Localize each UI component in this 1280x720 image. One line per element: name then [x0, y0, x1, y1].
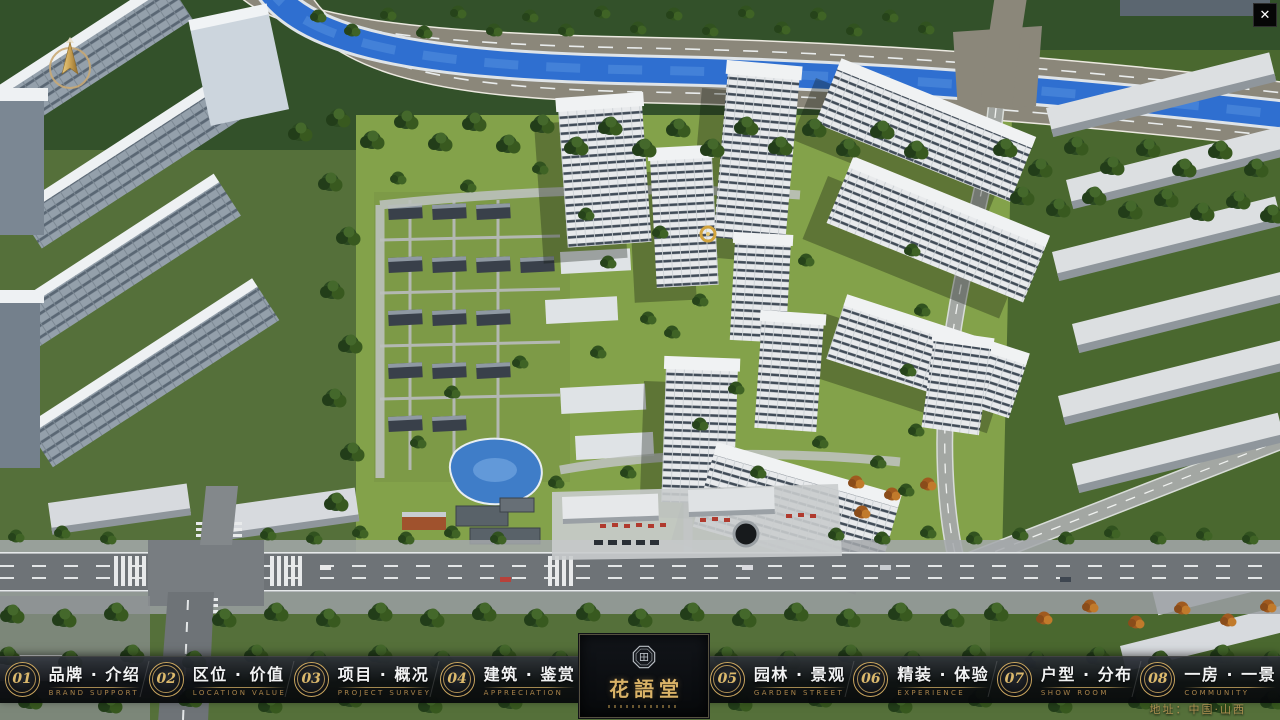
pond — [450, 439, 542, 505]
nav-label-zh: 建筑 · 鉴赏 — [484, 661, 576, 685]
nav-item-location-value[interactable]: 02 区位 · 价值 LOCATION VALUE — [145, 656, 290, 702]
nav-item-brand-intro[interactable]: 01 品牌 · 介绍 BRAND SUPPORT — [0, 656, 145, 702]
nav-item-project-overview[interactable]: 03 项目 · 概况 PROJECT SURVEY — [290, 656, 435, 702]
nav-divider-line — [193, 687, 286, 688]
nav-label-en: EXPERIENCE — [897, 689, 965, 697]
nav-number-badge: 02 — [149, 662, 184, 697]
nav-number-badge: 05 — [710, 662, 745, 697]
seal-emblem-icon — [631, 644, 657, 670]
nav-label-zh: 品牌 · 介绍 — [49, 661, 141, 685]
app-window: ✕ 01 品牌 · 介绍 BRAND SUPPORT 02 区位 · 价值 LO… — [0, 0, 1280, 720]
nav-number-badge: 01 — [5, 662, 40, 697]
nav-label-en: PROJECT SURVEY — [338, 689, 432, 697]
nav-label-zh: 精装 · 体验 — [897, 661, 989, 685]
nav-label-en: SHOW ROOM — [1041, 689, 1109, 697]
nav-label-zh: 园林 · 景观 — [754, 661, 846, 685]
entrance — [552, 484, 842, 560]
nav-divider-line — [1041, 687, 1133, 688]
nav-label-zh: 户型 · 分布 — [1041, 661, 1133, 685]
nav-divider-line — [1184, 687, 1276, 688]
nav-label-en: LOCATION VALUE — [193, 689, 286, 697]
nav-divider-line — [49, 687, 141, 688]
aerial-masterplan-render — [0, 0, 1280, 720]
nav-divider-line — [754, 687, 846, 688]
logo-subtext-line — [608, 705, 680, 708]
nav-label-en: GARDEN STREET — [754, 689, 844, 697]
nav-label-en: APPRECIATION — [484, 689, 564, 697]
nav-group-right: 05 园林 · 景观 GARDEN STREET 06 精装 · 体验 EXPE… — [706, 656, 1280, 702]
nav-divider-line — [484, 687, 576, 688]
close-button[interactable]: ✕ — [1253, 3, 1277, 27]
nav-label-en: BRAND SUPPORT — [49, 689, 139, 697]
nav-label-en: COMMUNITY — [1184, 689, 1249, 697]
nav-item-interior-experience[interactable]: 06 精装 · 体验 EXPERIENCE — [850, 656, 994, 702]
nav-divider-line — [338, 687, 432, 688]
nav-item-floorplan-distribution[interactable]: 07 户型 · 分布 SHOW ROOM — [993, 656, 1137, 702]
nav-label-zh: 一房 · 一景 — [1184, 661, 1276, 685]
nav-item-one-room-one-view[interactable]: 08 一房 · 一景 COMMUNITY — [1137, 656, 1280, 702]
nav-number-badge: 03 — [294, 662, 329, 697]
nav-number-badge: 04 — [440, 662, 475, 697]
nav-group-left: 01 品牌 · 介绍 BRAND SUPPORT 02 区位 · 价值 LOCA… — [0, 656, 580, 702]
nav-divider-line — [897, 687, 989, 688]
logo-panel[interactable]: 花語堂 — [579, 634, 709, 718]
nav-label-zh: 区位 · 价值 — [193, 661, 285, 685]
project-logo-text: 花語堂 — [604, 673, 684, 702]
nav-label-zh: 项目 · 概况 — [338, 661, 430, 685]
compass-icon — [40, 34, 100, 96]
nav-number-badge: 06 — [853, 662, 888, 697]
address-text: 地址：中国·山西 — [1150, 701, 1247, 717]
nav-number-badge: 08 — [1140, 662, 1175, 697]
nav-number-badge: 07 — [997, 662, 1032, 697]
nav-item-architecture[interactable]: 04 建筑 · 鉴赏 APPRECIATION — [435, 656, 580, 702]
nav-item-garden-landscape[interactable]: 05 园林 · 景观 GARDEN STREET — [706, 656, 850, 702]
